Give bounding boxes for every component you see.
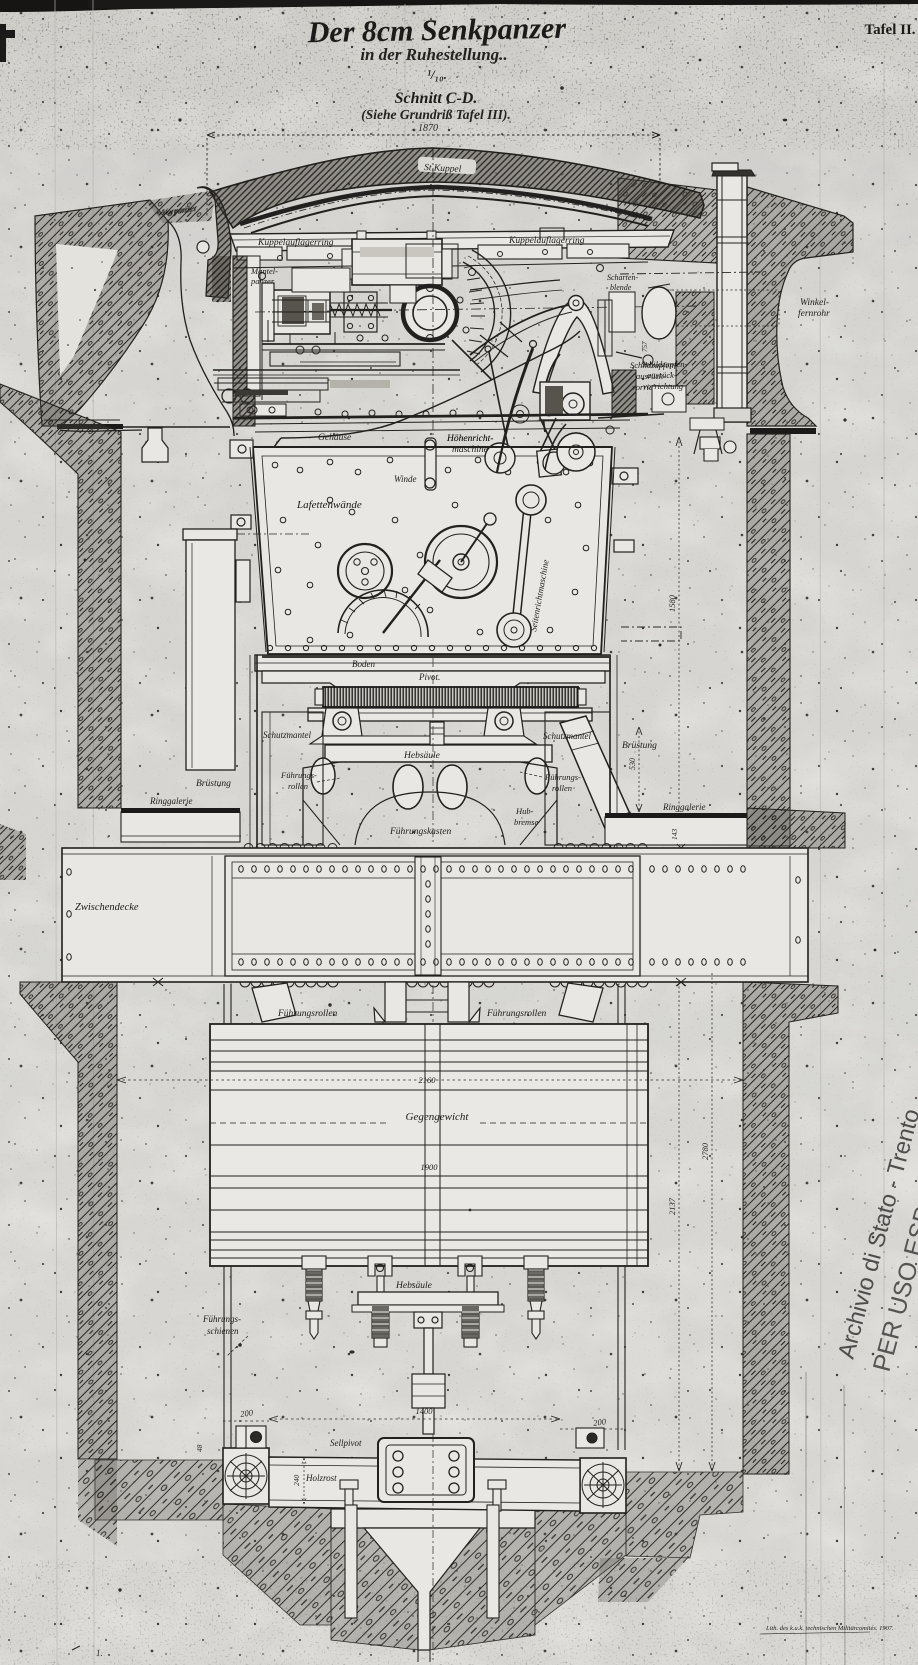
svg-text:Zwischendecke: Zwischendecke — [75, 902, 139, 913]
svg-text:48: 48 — [195, 1444, 204, 1452]
svg-text:vorrichtung: vorrichtung — [643, 381, 683, 391]
svg-text:Kuppelauflagerring: Kuppelauflagerring — [508, 235, 585, 246]
svg-text:1870: 1870 — [418, 123, 438, 134]
svg-text:143: 143 — [670, 829, 679, 841]
svg-text:Hebsäule: Hebsäule — [403, 751, 440, 761]
svg-text:Pivot.: Pivot. — [418, 672, 440, 682]
svg-text:Führungsrollen: Führungsrollen — [277, 1009, 338, 1019]
svg-text:Scharten-: Scharten- — [607, 273, 638, 282]
svg-text:Brüstung: Brüstung — [622, 741, 657, 751]
svg-text:Brüstung: Brüstung — [196, 779, 231, 789]
svg-text:Tafel II.: Tafel II. — [864, 22, 915, 38]
svg-text:Ringgalerie: Ringgalerie — [149, 796, 193, 806]
svg-text:Schnitt C-D.: Schnitt C-D. — [395, 90, 478, 107]
svg-text:fernrohr: fernrohr — [798, 308, 830, 319]
svg-text:Gehäuse: Gehäuse — [318, 433, 351, 443]
svg-text:2780: 2780 — [700, 1142, 710, 1160]
svg-text:Führungs-: Führungs- — [202, 1314, 241, 1324]
svg-text:Führungs-: Führungs- — [544, 772, 581, 782]
svg-text:ausrück-: ausrück- — [647, 370, 677, 380]
svg-text:Hub-: Hub- — [515, 806, 534, 816]
svg-text:Führungskasten: Führungskasten — [389, 827, 451, 837]
svg-text:Führungsrollen: Führungsrollen — [486, 1009, 547, 1019]
svg-text:Gegengewicht: Gegengewicht — [406, 1111, 470, 1123]
svg-text:2137: 2137 — [667, 1197, 677, 1215]
svg-text:Hebsäule: Hebsäule — [395, 1281, 432, 1291]
svg-text:Schutzmantel: Schutzmantel — [543, 731, 591, 741]
svg-text:240: 240 — [292, 1475, 301, 1487]
svg-text:Winde: Winde — [394, 474, 417, 484]
svg-text:Führungs-: Führungs- — [280, 770, 317, 780]
svg-text:blende: blende — [610, 283, 632, 292]
svg-text:Lith. des k.u.k. technischen M: Lith. des k.u.k. technischen Militärcomi… — [765, 1625, 894, 1632]
svg-text:530: 530 — [628, 758, 637, 770]
svg-text:in der Ruhestellung..: in der Ruhestellung.. — [360, 45, 507, 64]
svg-text:1400: 1400 — [416, 1406, 434, 1416]
svg-text:Kuppelauflagerring: Kuppelauflagerring — [257, 237, 334, 248]
svg-text:bremse: bremse — [514, 817, 538, 827]
svg-text:Sellpivot: Sellpivot — [330, 1438, 362, 1448]
svg-text:Boden: Boden — [352, 659, 375, 669]
svg-text:rollen: rollen — [288, 781, 308, 791]
svg-text:rollen: rollen — [552, 783, 572, 793]
svg-text:1580: 1580 — [667, 594, 677, 612]
svg-text:Höhenricht-: Höhenricht- — [446, 434, 493, 444]
svg-text:Winkel-: Winkel- — [800, 298, 829, 308]
svg-text:Ringgalerie: Ringgalerie — [662, 802, 706, 812]
svg-text:200: 200 — [593, 1416, 608, 1428]
svg-text:¹/₁₀.: ¹/₁₀. — [427, 67, 447, 82]
svg-text:schienen: schienen — [207, 1326, 239, 1336]
svg-text:1.: 1. — [96, 1648, 103, 1658]
svg-text:Holzrost: Holzrost — [305, 1473, 337, 1483]
svg-text:(Siehe Grundriß Tafel III).: (Siehe Grundriß Tafel III). — [361, 107, 511, 122]
svg-text:Schutzmantel: Schutzmantel — [263, 730, 311, 740]
svg-text:200: 200 — [240, 1407, 255, 1419]
svg-text:St.Kuppel: St.Kuppel — [424, 163, 462, 175]
svg-text:Schildzapfen-: Schildzapfen- — [641, 359, 687, 369]
svg-text:Der 8cm Senkpanzer: Der 8cm Senkpanzer — [306, 12, 566, 50]
svg-text:757: 757 — [641, 341, 649, 352]
svg-text:1900: 1900 — [421, 1162, 439, 1172]
